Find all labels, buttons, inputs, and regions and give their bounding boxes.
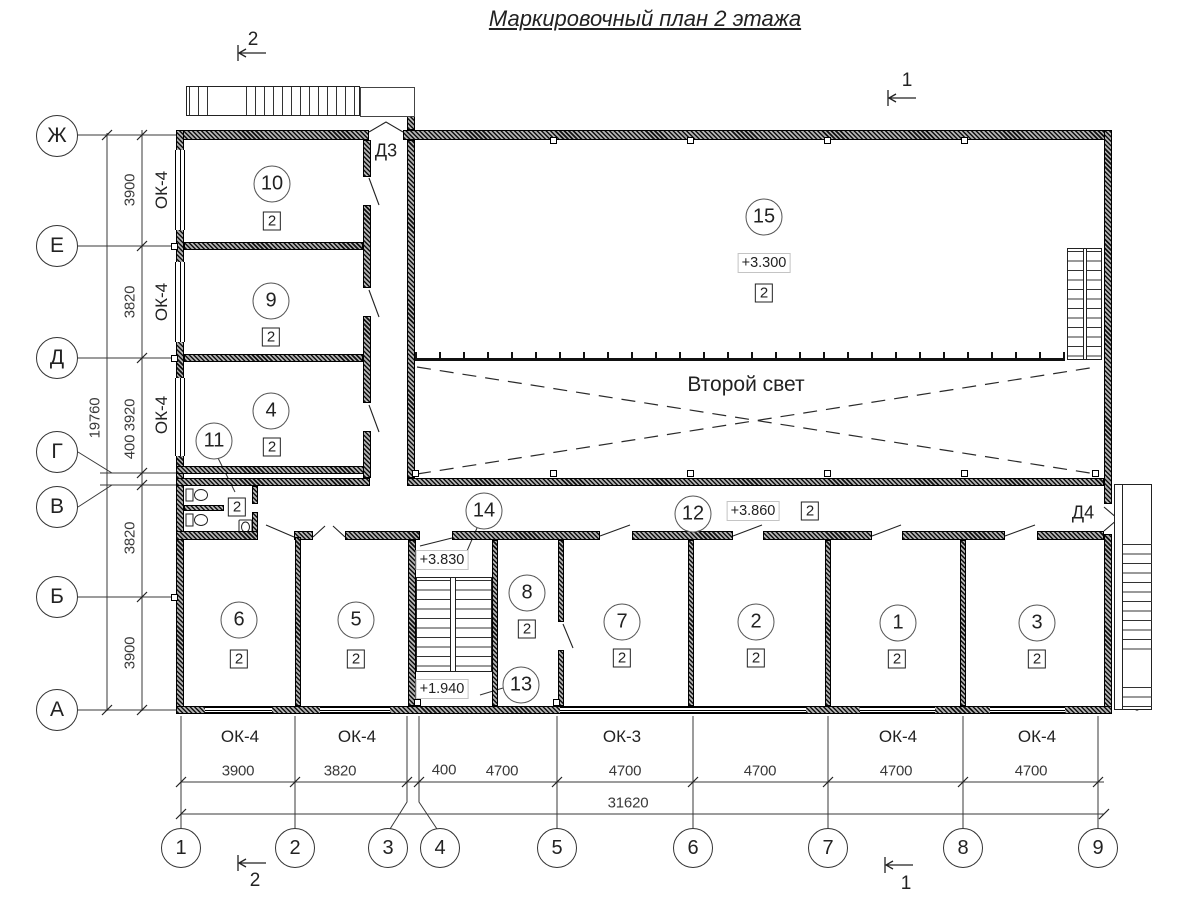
wall-corridor-stem-3 bbox=[363, 316, 371, 403]
room-3-number: 3 bbox=[1019, 605, 1056, 642]
window-label-bottom-3: ОК-3 bbox=[603, 727, 641, 747]
dim-left-6: 3900 bbox=[122, 637, 139, 670]
wall-corridor-f bbox=[763, 531, 872, 540]
room-13-elevation: +1.940 bbox=[416, 679, 469, 699]
partition-axis7 bbox=[825, 540, 831, 706]
room-8-type: 2 bbox=[518, 620, 536, 639]
wall-corridor-d bbox=[452, 531, 600, 540]
column-mark bbox=[553, 699, 560, 706]
room-3-type: 2 bbox=[1028, 650, 1046, 669]
room-2-type: 2 bbox=[747, 649, 765, 668]
dim-left-total: 19760 bbox=[87, 398, 104, 439]
room-7-type: 2 bbox=[613, 649, 631, 668]
dim-bottom-6: 4700 bbox=[744, 763, 777, 780]
axis-row-ye: Е bbox=[36, 225, 78, 267]
window-bottom-2 bbox=[320, 707, 390, 713]
room-14-number: 14 bbox=[466, 493, 503, 530]
axis-col-4: 4 bbox=[420, 828, 460, 868]
axis-col-9: 9 bbox=[1078, 828, 1118, 868]
wall-corridor-stem-1 bbox=[363, 140, 371, 177]
door-label-d4: Д4 bbox=[1072, 503, 1094, 524]
wall-axis-e bbox=[184, 242, 363, 250]
wall-corridor-stem-2 bbox=[363, 205, 371, 288]
column-mark bbox=[412, 470, 419, 477]
floor-plan-drawing: Маркировочный план 2 этажа Ж Е Д Г В Б А… bbox=[0, 0, 1200, 900]
wall-corridor-h bbox=[1037, 531, 1104, 540]
door-label-d3: Д3 bbox=[375, 141, 397, 162]
room15-staircase bbox=[1067, 248, 1102, 360]
room-2-number: 2 bbox=[738, 604, 775, 641]
dim-bottom-8: 4700 bbox=[1015, 763, 1048, 780]
partition-axis5-lower bbox=[558, 650, 564, 706]
room-9-number: 9 bbox=[253, 283, 290, 320]
axis-row-ge: Г bbox=[36, 431, 78, 473]
wall-axis-v-left bbox=[176, 478, 370, 486]
section-2-top: 2 bbox=[248, 29, 259, 51]
main-staircase bbox=[416, 577, 492, 672]
partition-axis8 bbox=[960, 540, 966, 706]
axis-row-ve: В bbox=[36, 486, 78, 528]
second-light-label: Второй свет bbox=[687, 373, 804, 397]
room-15-type: 2 bbox=[755, 284, 773, 303]
stair-treads bbox=[189, 87, 211, 115]
room-4-number: 4 bbox=[253, 393, 290, 430]
wall-axis-d bbox=[184, 354, 363, 362]
glazing-band bbox=[415, 358, 1065, 361]
axis-col-5: 5 bbox=[537, 828, 577, 868]
column-mark bbox=[171, 243, 178, 250]
stair-treads bbox=[1123, 687, 1152, 709]
stair-treads bbox=[1123, 544, 1152, 653]
room-12-number: 12 bbox=[675, 496, 712, 533]
wall-wc-partition bbox=[184, 505, 224, 511]
window-left-3 bbox=[175, 378, 185, 456]
wall-corridor-c bbox=[345, 531, 420, 540]
dim-left-1: 3900 bbox=[122, 174, 139, 207]
ext-stair-landing-top bbox=[360, 87, 415, 117]
axis-col-7: 7 bbox=[808, 828, 848, 868]
room-6-type: 2 bbox=[230, 650, 248, 669]
partition-axis5-upper bbox=[558, 540, 564, 622]
partition-stair-right bbox=[492, 540, 498, 706]
partition-axis2 bbox=[295, 537, 301, 706]
window-label-bottom-5: ОК-4 bbox=[1018, 727, 1056, 747]
room-5-type: 2 bbox=[347, 650, 365, 669]
window-bottom-3 bbox=[560, 707, 806, 713]
dim-bottom-2: 3820 bbox=[324, 763, 357, 780]
window-left-1 bbox=[175, 150, 185, 230]
ext-stair-right bbox=[1114, 484, 1152, 710]
axis-row-be: Б bbox=[36, 576, 78, 618]
room-10-type: 2 bbox=[263, 212, 281, 231]
window-label-left-1: ОК-4 bbox=[152, 171, 172, 209]
wall-axis-g bbox=[176, 466, 370, 474]
column-mark bbox=[1092, 470, 1099, 477]
ext-stair-top bbox=[186, 86, 360, 116]
room-6-number: 6 bbox=[221, 602, 258, 639]
room-1-type: 2 bbox=[888, 650, 906, 669]
axis-col-6: 6 bbox=[673, 828, 713, 868]
axis-col-8: 8 bbox=[943, 828, 983, 868]
room-12-elevation: +3.860 bbox=[727, 501, 780, 521]
dim-bottom-3: 400 bbox=[432, 762, 456, 779]
window-label-left-3: ОК-4 bbox=[152, 396, 172, 434]
dim-bottom-7: 4700 bbox=[880, 763, 913, 780]
window-bottom-4 bbox=[860, 707, 935, 713]
axis-col-3: 3 bbox=[368, 828, 408, 868]
wall-wc-right-1 bbox=[252, 486, 258, 504]
column-mark bbox=[824, 470, 831, 477]
stair-divider bbox=[450, 578, 456, 671]
column-mark bbox=[171, 355, 178, 362]
dim-left-2: 3820 bbox=[122, 286, 139, 319]
dim-left-5: 3820 bbox=[122, 522, 139, 555]
column-mark bbox=[171, 594, 178, 601]
dimension-ticks bbox=[102, 130, 1109, 819]
room-8-number: 8 bbox=[509, 575, 546, 612]
room-1-number: 1 bbox=[880, 605, 917, 642]
dim-bottom-4: 4700 bbox=[486, 763, 519, 780]
dim-left-3: 3920 bbox=[122, 399, 139, 432]
room-13-number: 13 bbox=[503, 667, 540, 704]
wall-top-right bbox=[403, 130, 1112, 140]
room-12-type: 2 bbox=[801, 502, 819, 521]
room-11-type: 2 bbox=[228, 498, 246, 517]
room-14-elevation: +3.830 bbox=[416, 550, 469, 570]
stair-treads bbox=[246, 87, 358, 115]
window-label-bottom-4: ОК-4 bbox=[879, 727, 917, 747]
room-10-number: 10 bbox=[254, 166, 291, 203]
room-7-number: 7 bbox=[604, 604, 641, 641]
window-label-left-2: ОК-4 bbox=[152, 283, 172, 321]
column-mark bbox=[824, 137, 831, 144]
section-1-bottom: 1 bbox=[901, 873, 912, 895]
wall-corridor-e bbox=[632, 531, 733, 540]
wall-corridor-stem-4 bbox=[363, 431, 371, 478]
wall-room15-left bbox=[407, 140, 415, 478]
column-mark bbox=[550, 470, 557, 477]
wall-corridor-g bbox=[902, 531, 1005, 540]
wall-right-lower bbox=[1104, 534, 1112, 714]
axis-row-zh: Ж bbox=[36, 115, 78, 157]
axis-col-1: 1 bbox=[161, 828, 201, 868]
window-bottom-5 bbox=[990, 707, 1065, 713]
page-title: Маркировочный план 2 этажа bbox=[489, 6, 801, 32]
window-label-bottom-2: ОК-4 bbox=[338, 727, 376, 747]
axis-row-a: А bbox=[36, 689, 78, 731]
stair-divider bbox=[1083, 249, 1087, 359]
dim-bottom-5: 4700 bbox=[609, 763, 642, 780]
wall-corridor-a bbox=[176, 531, 258, 540]
room-15-number: 15 bbox=[746, 199, 783, 236]
section-2-bottom: 2 bbox=[250, 870, 261, 892]
partition-axis6 bbox=[688, 540, 694, 706]
column-mark bbox=[414, 699, 421, 706]
column-mark bbox=[687, 137, 694, 144]
dim-bottom-total: 31620 bbox=[608, 795, 649, 812]
window-label-bottom-1: ОК-4 bbox=[221, 727, 259, 747]
section-1-top: 1 bbox=[902, 70, 913, 92]
wall-top-left bbox=[176, 130, 369, 140]
axis-row-de: Д bbox=[36, 337, 78, 379]
dim-bottom-1: 3900 bbox=[222, 763, 255, 780]
room-9-type: 2 bbox=[262, 328, 280, 347]
wall-right-upper bbox=[1104, 130, 1112, 504]
wall-axis-v-right bbox=[407, 478, 1104, 486]
room-11-number: 11 bbox=[196, 423, 233, 460]
column-mark bbox=[550, 137, 557, 144]
column-mark bbox=[961, 470, 968, 477]
axis-col-2: 2 bbox=[275, 828, 315, 868]
column-mark bbox=[961, 137, 968, 144]
window-bottom-1 bbox=[205, 707, 272, 713]
dim-left-4: 400 bbox=[122, 435, 139, 459]
column-mark bbox=[687, 470, 694, 477]
room-4-type: 2 bbox=[263, 438, 281, 457]
room-15-elevation: +3.300 bbox=[738, 253, 791, 273]
room-5-number: 5 bbox=[338, 602, 375, 639]
window-left-2 bbox=[175, 262, 185, 342]
section-marker-arrows bbox=[238, 45, 916, 873]
